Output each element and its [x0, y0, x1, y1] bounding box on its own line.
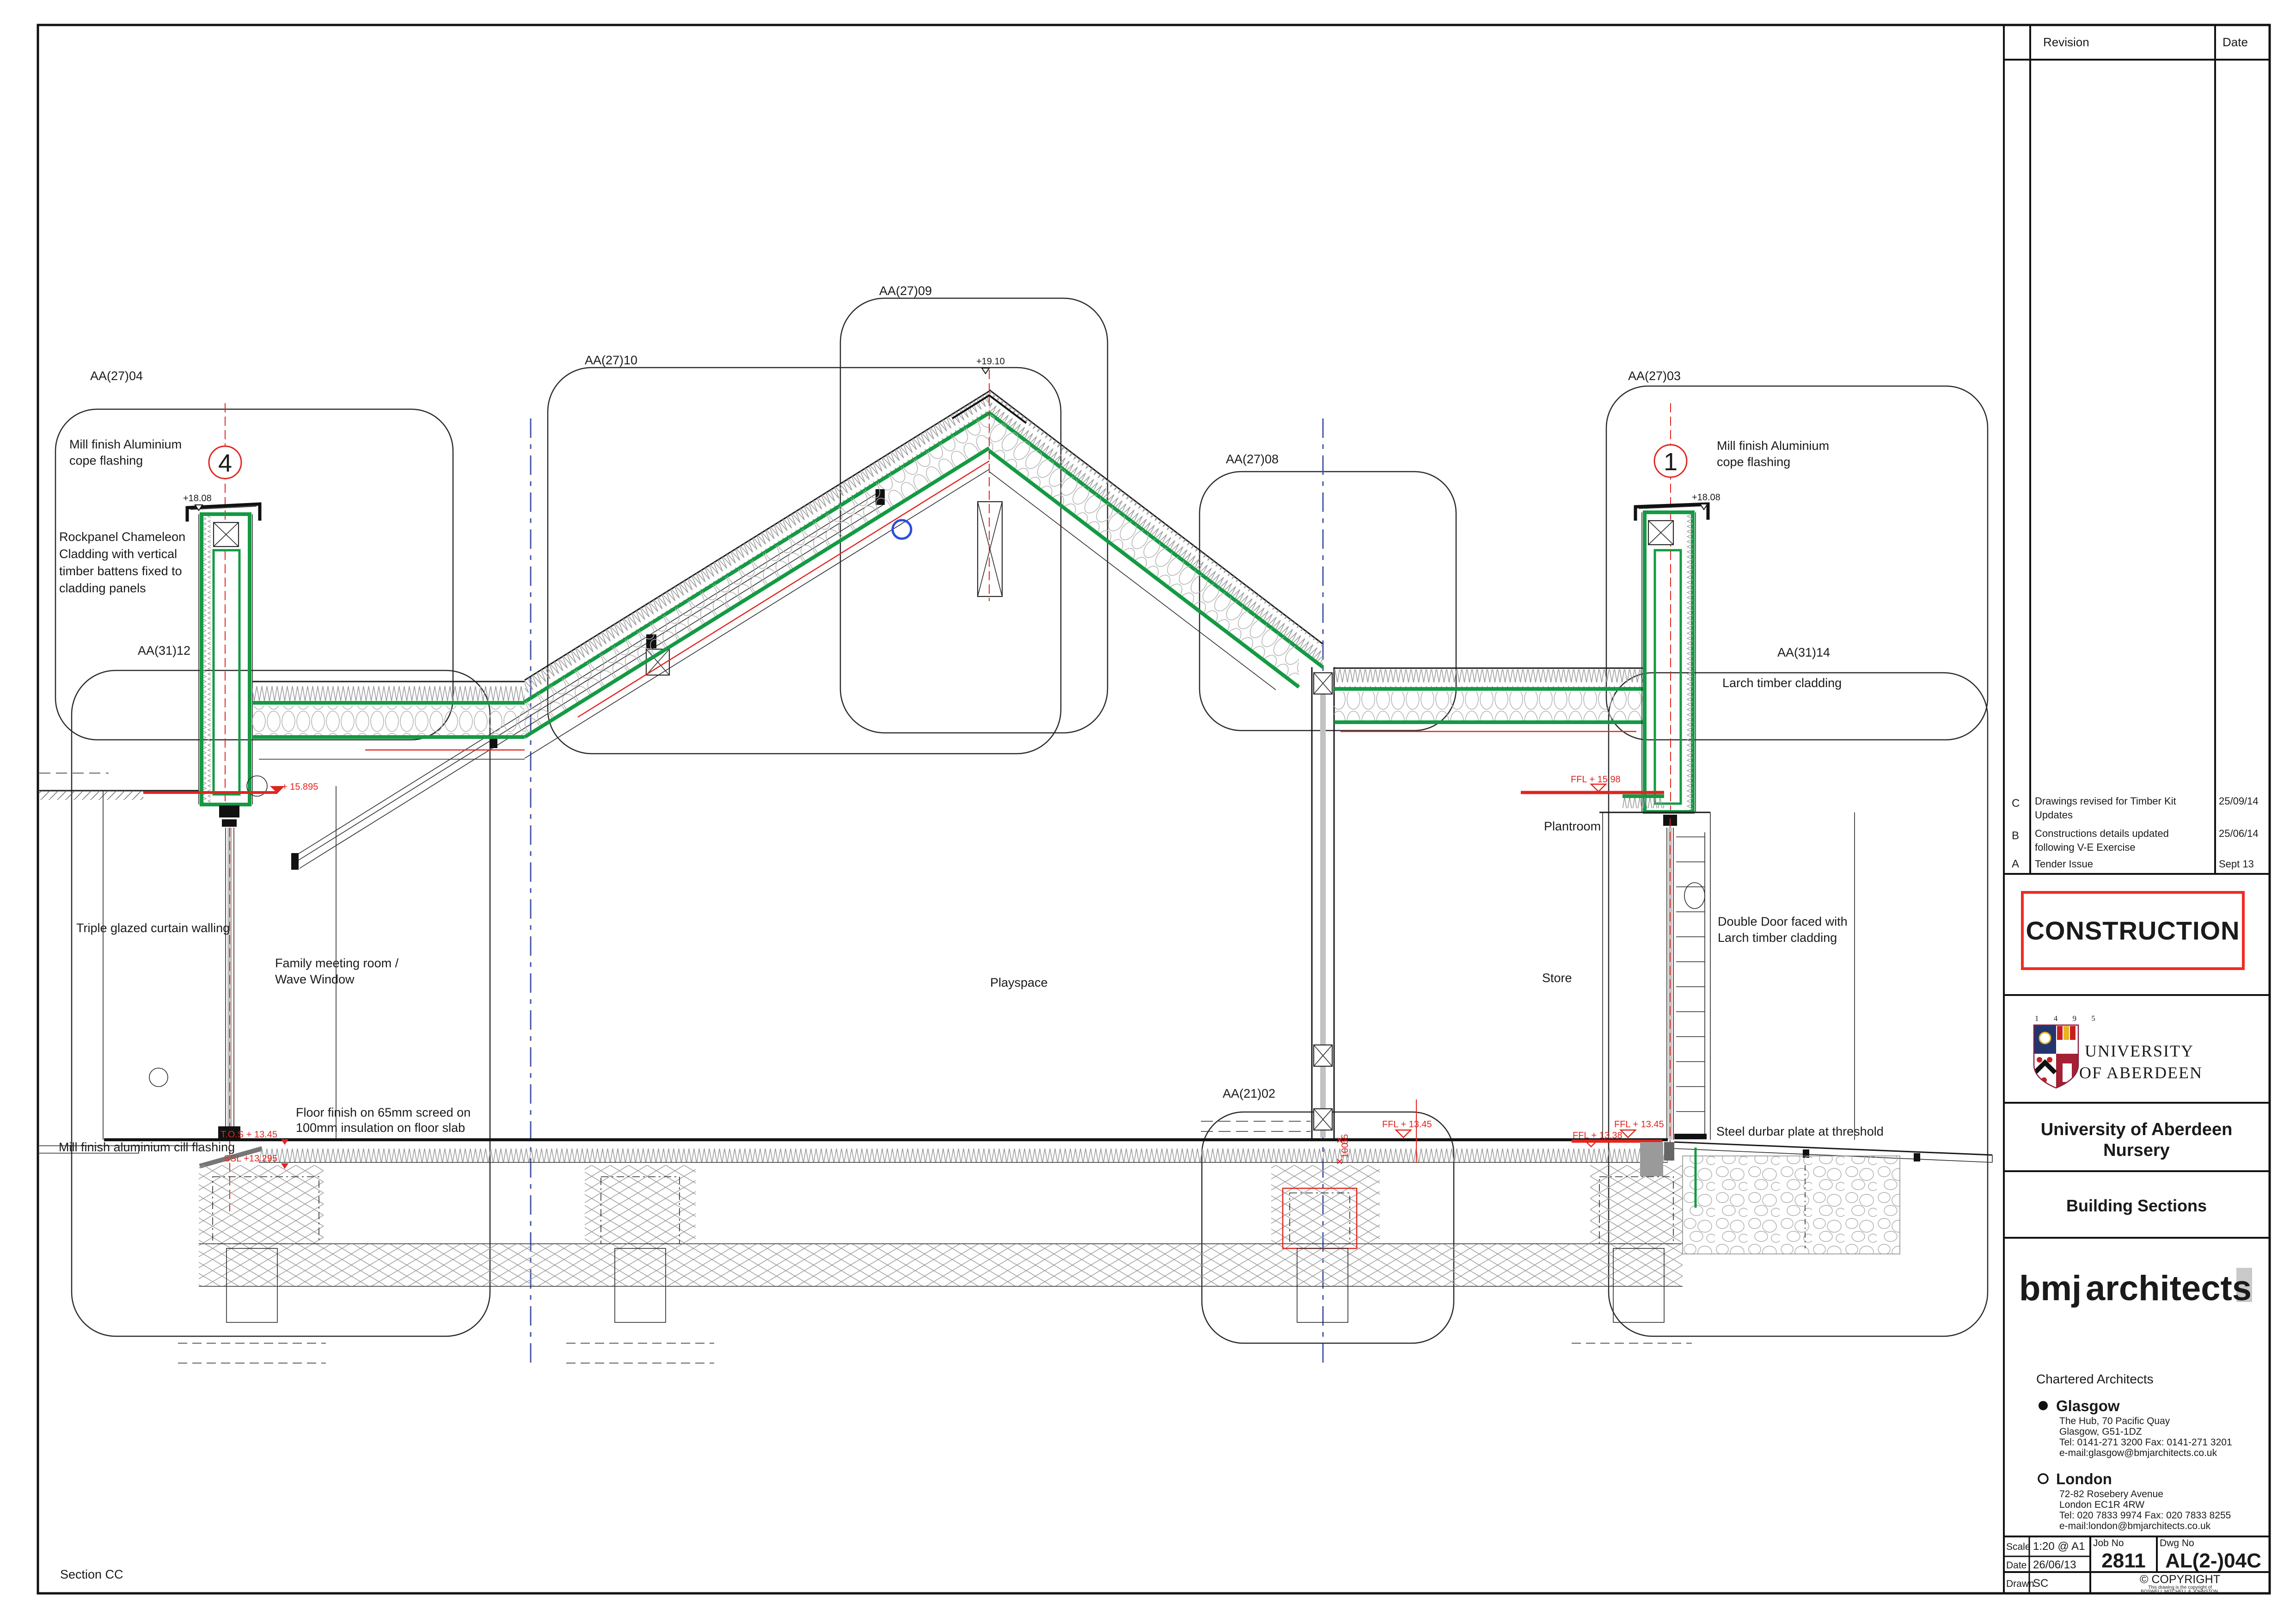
label-family-1: Wave Window: [275, 972, 355, 986]
copyright: © COPYRIGHT: [2140, 1573, 2220, 1586]
label-store: Store: [1542, 971, 1572, 985]
glasgow-line: Tel: 0141-271 3200 Fax: 0141-271 3201: [2059, 1437, 2232, 1448]
ground-floor-slab: [104, 1140, 1683, 1286]
rev-b-desc1: Constructions details updated: [2035, 828, 2169, 839]
drawing-title: Building Sections: [2066, 1196, 2207, 1215]
scale-value: 1:20 @ A1: [2033, 1540, 2085, 1553]
london-bullet-icon: [2039, 1474, 2048, 1483]
copyright-small-2: BOSWELL MITCHELL & JOHNSTON.: [2141, 1589, 2219, 1594]
rev-b-letter: B: [2012, 829, 2019, 842]
rev-a-letter: A: [2012, 858, 2019, 870]
label-playspace: Playspace: [990, 976, 1048, 989]
project-title: University of Aberdeen Nursery: [2041, 1120, 2233, 1160]
label-durbar: Steel durbar plate at threshold: [1716, 1124, 1884, 1138]
glasgow-line: The Hub, 70 Pacific Quay: [2059, 1416, 2170, 1426]
label-floor-0: Floor finish on 65mm screed on: [296, 1106, 471, 1119]
info-table: Scale 1:20 @ A1 Date 26/06/13 Drawn SC J…: [2004, 1536, 2270, 1594]
dwg-number: AL(2-)04C: [2165, 1549, 2261, 1572]
project-line2: Nursery: [2103, 1141, 2170, 1160]
level-ridge: +19.10: [976, 356, 1005, 367]
callout-label-aa2710: AA(27)10: [585, 353, 637, 367]
glasgow-line: e-mail:glasgow@bmjarchitects.co.uk: [2059, 1448, 2217, 1458]
detail-marker-4: 4: [218, 449, 232, 477]
rev-c-date: 25/09/14: [2219, 795, 2259, 807]
date-value: 26/06/13: [2033, 1559, 2076, 1571]
left-flat-roof: [252, 682, 525, 759]
glasgow-line: Glasgow, G51-1DZ: [2059, 1426, 2142, 1437]
left-parapet-detail: 4 +18.08: [183, 403, 260, 805]
london-line: Tel: 020 7833 9974 Fax: 020 7833 8255: [2059, 1510, 2231, 1521]
rev-a-date: Sept 13: [2219, 858, 2254, 870]
title-block: Revision Date C Drawings revised for Tim…: [2004, 25, 2270, 1594]
svg-text:FFL + 13.45: FFL + 13.45: [1382, 1119, 1432, 1130]
revision-header: Revision: [2043, 35, 2089, 49]
scale-label: Scale: [2006, 1542, 2031, 1552]
rev-c-letter: C: [2012, 797, 2020, 810]
rev-b-date: 25/06/14: [2219, 828, 2259, 839]
label-door-0: Double Door faced with: [1718, 915, 1848, 928]
construction-stamp: CONSTRUCTION: [2022, 892, 2243, 969]
label-curtain-wall: Triple glazed curtain walling: [76, 921, 230, 935]
label-family-0: Family meeting room /: [275, 956, 399, 970]
glasgow-name: Glasgow: [2056, 1397, 2120, 1414]
project-line1: University of Aberdeen: [2041, 1120, 2233, 1139]
sheet: Section CC AA(27)04 AA(27)10 AA(27)09 AA…: [0, 0, 2296, 1622]
london-line: e-mail:london@bmjarchitects.co.uk: [2059, 1521, 2211, 1531]
svg-text:SSL +13.295: SSL +13.295: [224, 1154, 277, 1164]
label-plantroom: Plantroom: [1544, 819, 1601, 833]
job-label: Job No: [2093, 1538, 2124, 1548]
london-line: London EC1R 4RW: [2059, 1499, 2144, 1510]
firm-subtitle: Chartered Architects: [2036, 1372, 2154, 1386]
label-rockpanel-3: cladding panels: [59, 581, 146, 595]
firm-logo-bmj: bmj: [2019, 1269, 2082, 1308]
callout-label-aa2704: AA(27)04: [90, 369, 143, 383]
drawn-value: SC: [2033, 1577, 2048, 1590]
glazing-symbol: [893, 520, 911, 539]
uoa-line2: OF ABERDEEN: [2079, 1063, 2203, 1082]
glasgow-bullet-icon: [2039, 1401, 2048, 1410]
label-cope-right-0: Mill finish Aluminium: [1717, 439, 1829, 453]
right-parapet-detail: 1 +18.08: [1635, 403, 1720, 812]
label-floor-1: 100mm insulation on floor slab: [296, 1121, 465, 1135]
label-rockpanel-1: Cladding with vertical: [59, 547, 177, 561]
label-rockpanel-2: timber battens fixed to: [59, 564, 182, 578]
detail-marker-1: 1: [1664, 448, 1678, 476]
callout-label-aa3112: AA(31)12: [138, 644, 190, 657]
job-number: 2811: [2101, 1549, 2145, 1572]
dwg-label: Dwg No: [2160, 1538, 2194, 1548]
section-title: Section CC: [60, 1567, 123, 1581]
middle-wall: [1201, 667, 1334, 1140]
svg-text:100: 100: [1340, 1143, 1350, 1158]
label-larch: Larch timber cladding: [1722, 676, 1842, 690]
drawing-canvas: AA(27)04 AA(27)10 AA(27)09 AA(27)08 AA(2…: [39, 284, 1992, 1364]
svg-text:FFL + 13.38: FFL + 13.38: [1573, 1130, 1623, 1141]
rev-c-desc2: Updates: [2035, 809, 2073, 821]
level-parapet-left: +18.08: [183, 493, 212, 504]
uoa-line1: UNIVERSITY: [2085, 1042, 2194, 1060]
level-parapet-right: +18.08: [1692, 492, 1720, 503]
rev-c-desc1: Drawings revised for Timber Kit: [2035, 795, 2176, 807]
level-eaves-left: + 15.895: [143, 782, 318, 793]
firm-logo-architects: architects: [2086, 1269, 2252, 1308]
date-label: Date: [2006, 1560, 2027, 1571]
firm-addresses: Chartered Architects Glasgow The Hub, 70…: [2036, 1372, 2232, 1531]
right-door-wall: [1599, 812, 1855, 1147]
uoa-shield: [2034, 1025, 2078, 1098]
right-flat-roof: [1334, 668, 1645, 731]
callout-label-aa2703: AA(27)03: [1628, 369, 1681, 383]
svg-text:T.O.S + 13.45: T.O.S + 13.45: [220, 1130, 277, 1140]
revision-table: Revision Date C Drawings revised for Tim…: [2004, 25, 2270, 874]
label-door-1: Larch timber cladding: [1718, 931, 1837, 945]
stamp-text: CONSTRUCTION: [2026, 916, 2240, 945]
plantroom-floor: FFL + 15.98: [1521, 774, 1664, 808]
pitched-roof: +19.10: [525, 356, 1323, 758]
callout-label-aa2102: AA(21)02: [1223, 1087, 1275, 1100]
date-header: Date: [2223, 35, 2248, 49]
callout-label-aa2708: AA(27)08: [1226, 452, 1279, 466]
svg-text:+ 15.895: + 15.895: [282, 782, 318, 792]
rev-a-desc1: Tender Issue: [2035, 858, 2093, 870]
label-cill: Mill finish aluminium cill flashing: [59, 1140, 235, 1154]
firm-logo: bmj architects: [2019, 1268, 2252, 1308]
label-cope-left-1: cope flashing: [69, 454, 143, 467]
rev-b-desc2: following V-E Exercise: [2035, 842, 2136, 853]
callout-label-aa3114: AA(31)14: [1777, 645, 1830, 659]
callout-label-aa2709: AA(27)09: [879, 284, 932, 298]
sheet-frame: Section CC: [38, 25, 2270, 1593]
label-cope-left-0: Mill finish Aluminium: [69, 437, 182, 451]
uoa-year: 1 4 9 5: [2035, 1014, 2102, 1023]
svg-text:FFL + 15.98: FFL + 15.98: [1571, 774, 1621, 785]
london-name: London: [2056, 1470, 2112, 1487]
annotations: Mill finish Aluminium cope flashing Rock…: [59, 437, 1884, 1154]
uoa-logo: 1 4 9 5 UNIVERSITY OF ABERDEEN: [2034, 1014, 2203, 1098]
label-rockpanel-0: Rockpanel Chameleon: [59, 530, 185, 544]
label-cope-right-1: cope flashing: [1717, 455, 1790, 469]
left-curtain-wall: [149, 489, 885, 1211]
drawn-label: Drawn: [2006, 1579, 2034, 1589]
london-line: 72-82 Rosebery Avenue: [2059, 1489, 2163, 1499]
svg-text:FFL + 13.45: FFL + 13.45: [1614, 1119, 1664, 1130]
